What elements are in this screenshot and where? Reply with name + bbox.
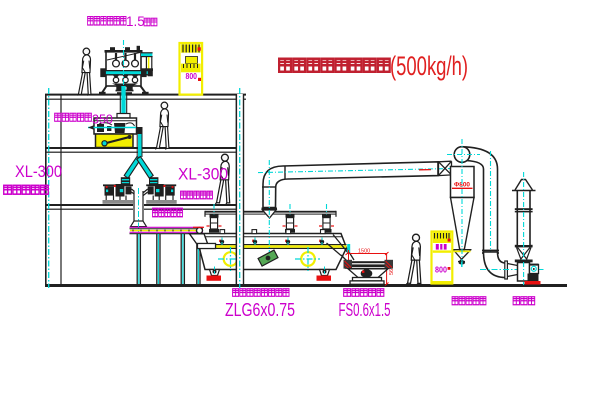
svg-text:350: 350 [92, 113, 113, 127]
svg-text:1.5: 1.5 [126, 14, 145, 29]
svg-text:800: 800 [186, 71, 198, 81]
svg-text:XL-300: XL-300 [15, 162, 62, 181]
svg-text:FS0.6x1.5: FS0.6x1.5 [339, 299, 391, 320]
svg-text:(500kg/h): (500kg/h) [390, 51, 468, 81]
svg-text:800: 800 [435, 265, 447, 275]
svg-text:XL-300: XL-300 [178, 165, 228, 184]
svg-text:1500: 1500 [358, 249, 370, 255]
svg-text:ZLG6x0.75: ZLG6x0.75 [225, 299, 295, 320]
